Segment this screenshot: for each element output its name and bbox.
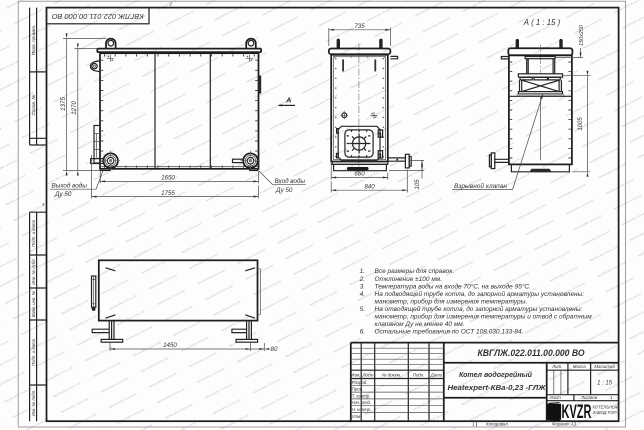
svg-text:Т. контр.: Т. контр.	[352, 393, 371, 398]
svg-text:Копировал: Копировал	[486, 421, 508, 426]
svg-text:№ докум.: № докум.	[382, 373, 401, 378]
svg-text:Котел водогрейный: Котел водогрейный	[459, 370, 533, 379]
svg-text:Остальные требования по ОСТ 10: Остальные требования по ОСТ 108.030.133-…	[375, 328, 524, 336]
svg-text:Утв.: Утв.	[352, 414, 362, 419]
svg-text:650: 650	[354, 171, 365, 178]
svg-text:Листов: Листов	[580, 395, 598, 400]
svg-text:Взам. инв. №: Взам. инв. №	[31, 290, 36, 317]
svg-text:Выход воды: Выход воды	[52, 182, 88, 190]
svg-text:На отводящей трубе котла, до з: На отводящей трубе котла, до запорной ар…	[375, 305, 583, 313]
svg-text:На подводящей трубе котла, до: На подводящей трубе котла, до запорной а…	[375, 290, 585, 298]
svg-text:1755: 1755	[161, 190, 175, 197]
svg-text:Инв. № подл.: Инв. № подл.	[31, 390, 36, 417]
svg-text:Изм.: Изм.	[351, 373, 360, 378]
svg-text:Взрывной клапан: Взрывной клапан	[454, 183, 508, 190]
svg-text:2.: 2.	[359, 276, 366, 283]
svg-text:манометр, прибор для измерения: манометр, прибор для измерения температу…	[375, 297, 528, 305]
svg-text:Нач. отд.: Нач. отд.	[352, 400, 371, 405]
svg-text:Все размеры для справок.: Все размеры для справок.	[375, 267, 455, 275]
svg-text:Масса: Масса	[573, 364, 587, 369]
svg-text:Разраб.: Разраб.	[352, 380, 368, 385]
svg-text:1650: 1650	[161, 175, 175, 182]
svg-text:Подп. и дата: Подп. и дата	[31, 338, 36, 366]
svg-text:1.: 1.	[360, 268, 366, 275]
svg-text:150х250: 150х250	[579, 25, 585, 46]
svg-text:Ду 50: Ду 50	[54, 191, 72, 198]
svg-text:Перв. примен.: Перв. примен.	[31, 25, 36, 56]
svg-text:Лист: Лист	[549, 395, 562, 400]
svg-text:Температура воды на входе 70°С: Температура воды на входе 70°С, на выход…	[375, 282, 532, 290]
svg-text:Heatexpert-КВа-0,23 -ГЛЖ: Heatexpert-КВа-0,23 -ГЛЖ	[448, 383, 546, 392]
svg-text:КВГЛЖ.022.011.00.000 ВО: КВГЛЖ.022.011.00.000 ВО	[478, 348, 585, 358]
svg-text:1 : 15: 1 : 15	[597, 381, 613, 387]
svg-text:Подп. и дата: Подп. и дата	[31, 220, 36, 248]
svg-text:1450: 1450	[163, 342, 177, 349]
svg-text:ЗАВОД РЭП: ЗАВОД РЭП	[593, 410, 618, 415]
svg-text:6.: 6.	[360, 329, 366, 336]
svg-text:4.: 4.	[360, 291, 366, 298]
svg-text:КВГЛЖ.022.011.00.000 ВО: КВГЛЖ.022.011.00.000 ВО	[51, 12, 143, 21]
svg-text:Лист: Лист	[361, 373, 373, 378]
svg-text:клапаном Ду не менее 40 мм.: клапаном Ду не менее 40 мм.	[375, 321, 465, 328]
svg-text:1270: 1270	[71, 101, 78, 115]
svg-text:105: 105	[415, 179, 421, 190]
svg-text:Справ. №: Справ. №	[31, 95, 36, 116]
svg-text:А: А	[285, 96, 291, 105]
svg-text:манометр, прибор для измерения: манометр, прибор для измерения температу…	[375, 313, 593, 321]
svg-text:5.: 5.	[360, 306, 366, 313]
svg-text:Отклонение ±100 мм.: Отклонение ±100 мм.	[375, 276, 443, 283]
svg-text:Лит.: Лит.	[551, 364, 562, 369]
svg-text:Дата: Дата	[430, 373, 443, 378]
svg-text:Подп.: Подп.	[413, 373, 424, 378]
svg-text:80: 80	[271, 346, 278, 353]
svg-text:KVZR: KVZR	[562, 402, 592, 423]
svg-text:1005: 1005	[578, 117, 584, 131]
svg-text:Ду 50: Ду 50	[275, 187, 293, 194]
svg-text:Масштаб: Масштаб	[594, 364, 615, 369]
svg-text:Вход воды: Вход воды	[275, 177, 306, 185]
svg-text:840: 840	[364, 183, 375, 190]
svg-text:Пров.: Пров.	[352, 387, 363, 392]
svg-text:КОТЕЛЬНЫЙ: КОТЕЛЬНЫЙ	[593, 405, 619, 410]
svg-text:Н. контр.: Н. контр.	[352, 407, 371, 412]
svg-text:Формат А3: Формат А3	[552, 421, 577, 426]
svg-text:3.: 3.	[360, 283, 366, 290]
svg-text:Инв. № дубл.: Инв. № дубл.	[31, 258, 36, 284]
svg-text:735: 735	[354, 23, 365, 30]
svg-text:А ( 1 : 15 ): А ( 1 : 15 )	[523, 18, 561, 27]
svg-text:1375: 1375	[60, 97, 67, 111]
